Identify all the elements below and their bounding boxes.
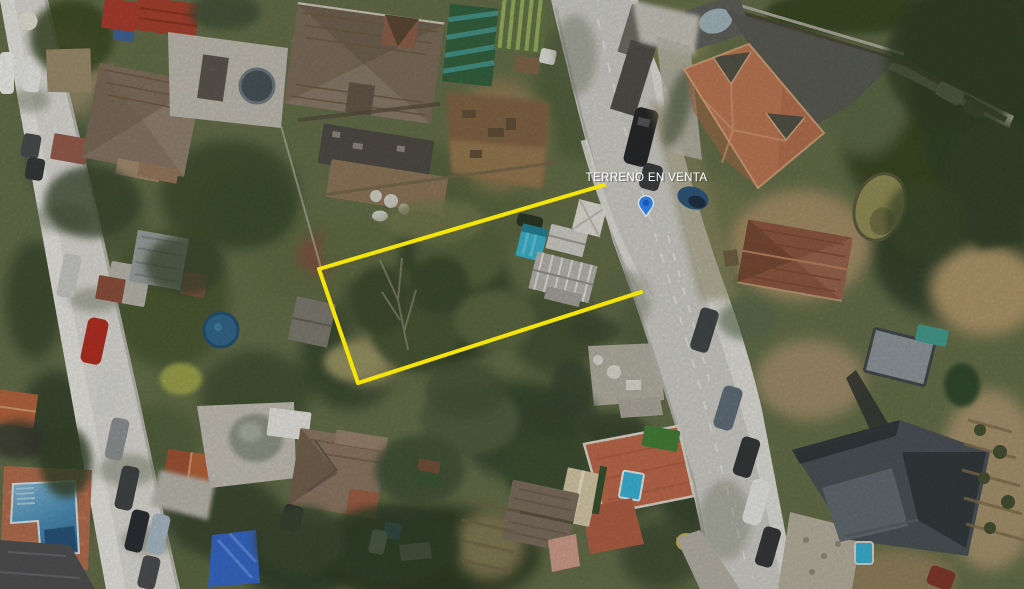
svg-text:TERRENO EN VENTA: TERRENO EN VENTA [586, 172, 708, 184]
